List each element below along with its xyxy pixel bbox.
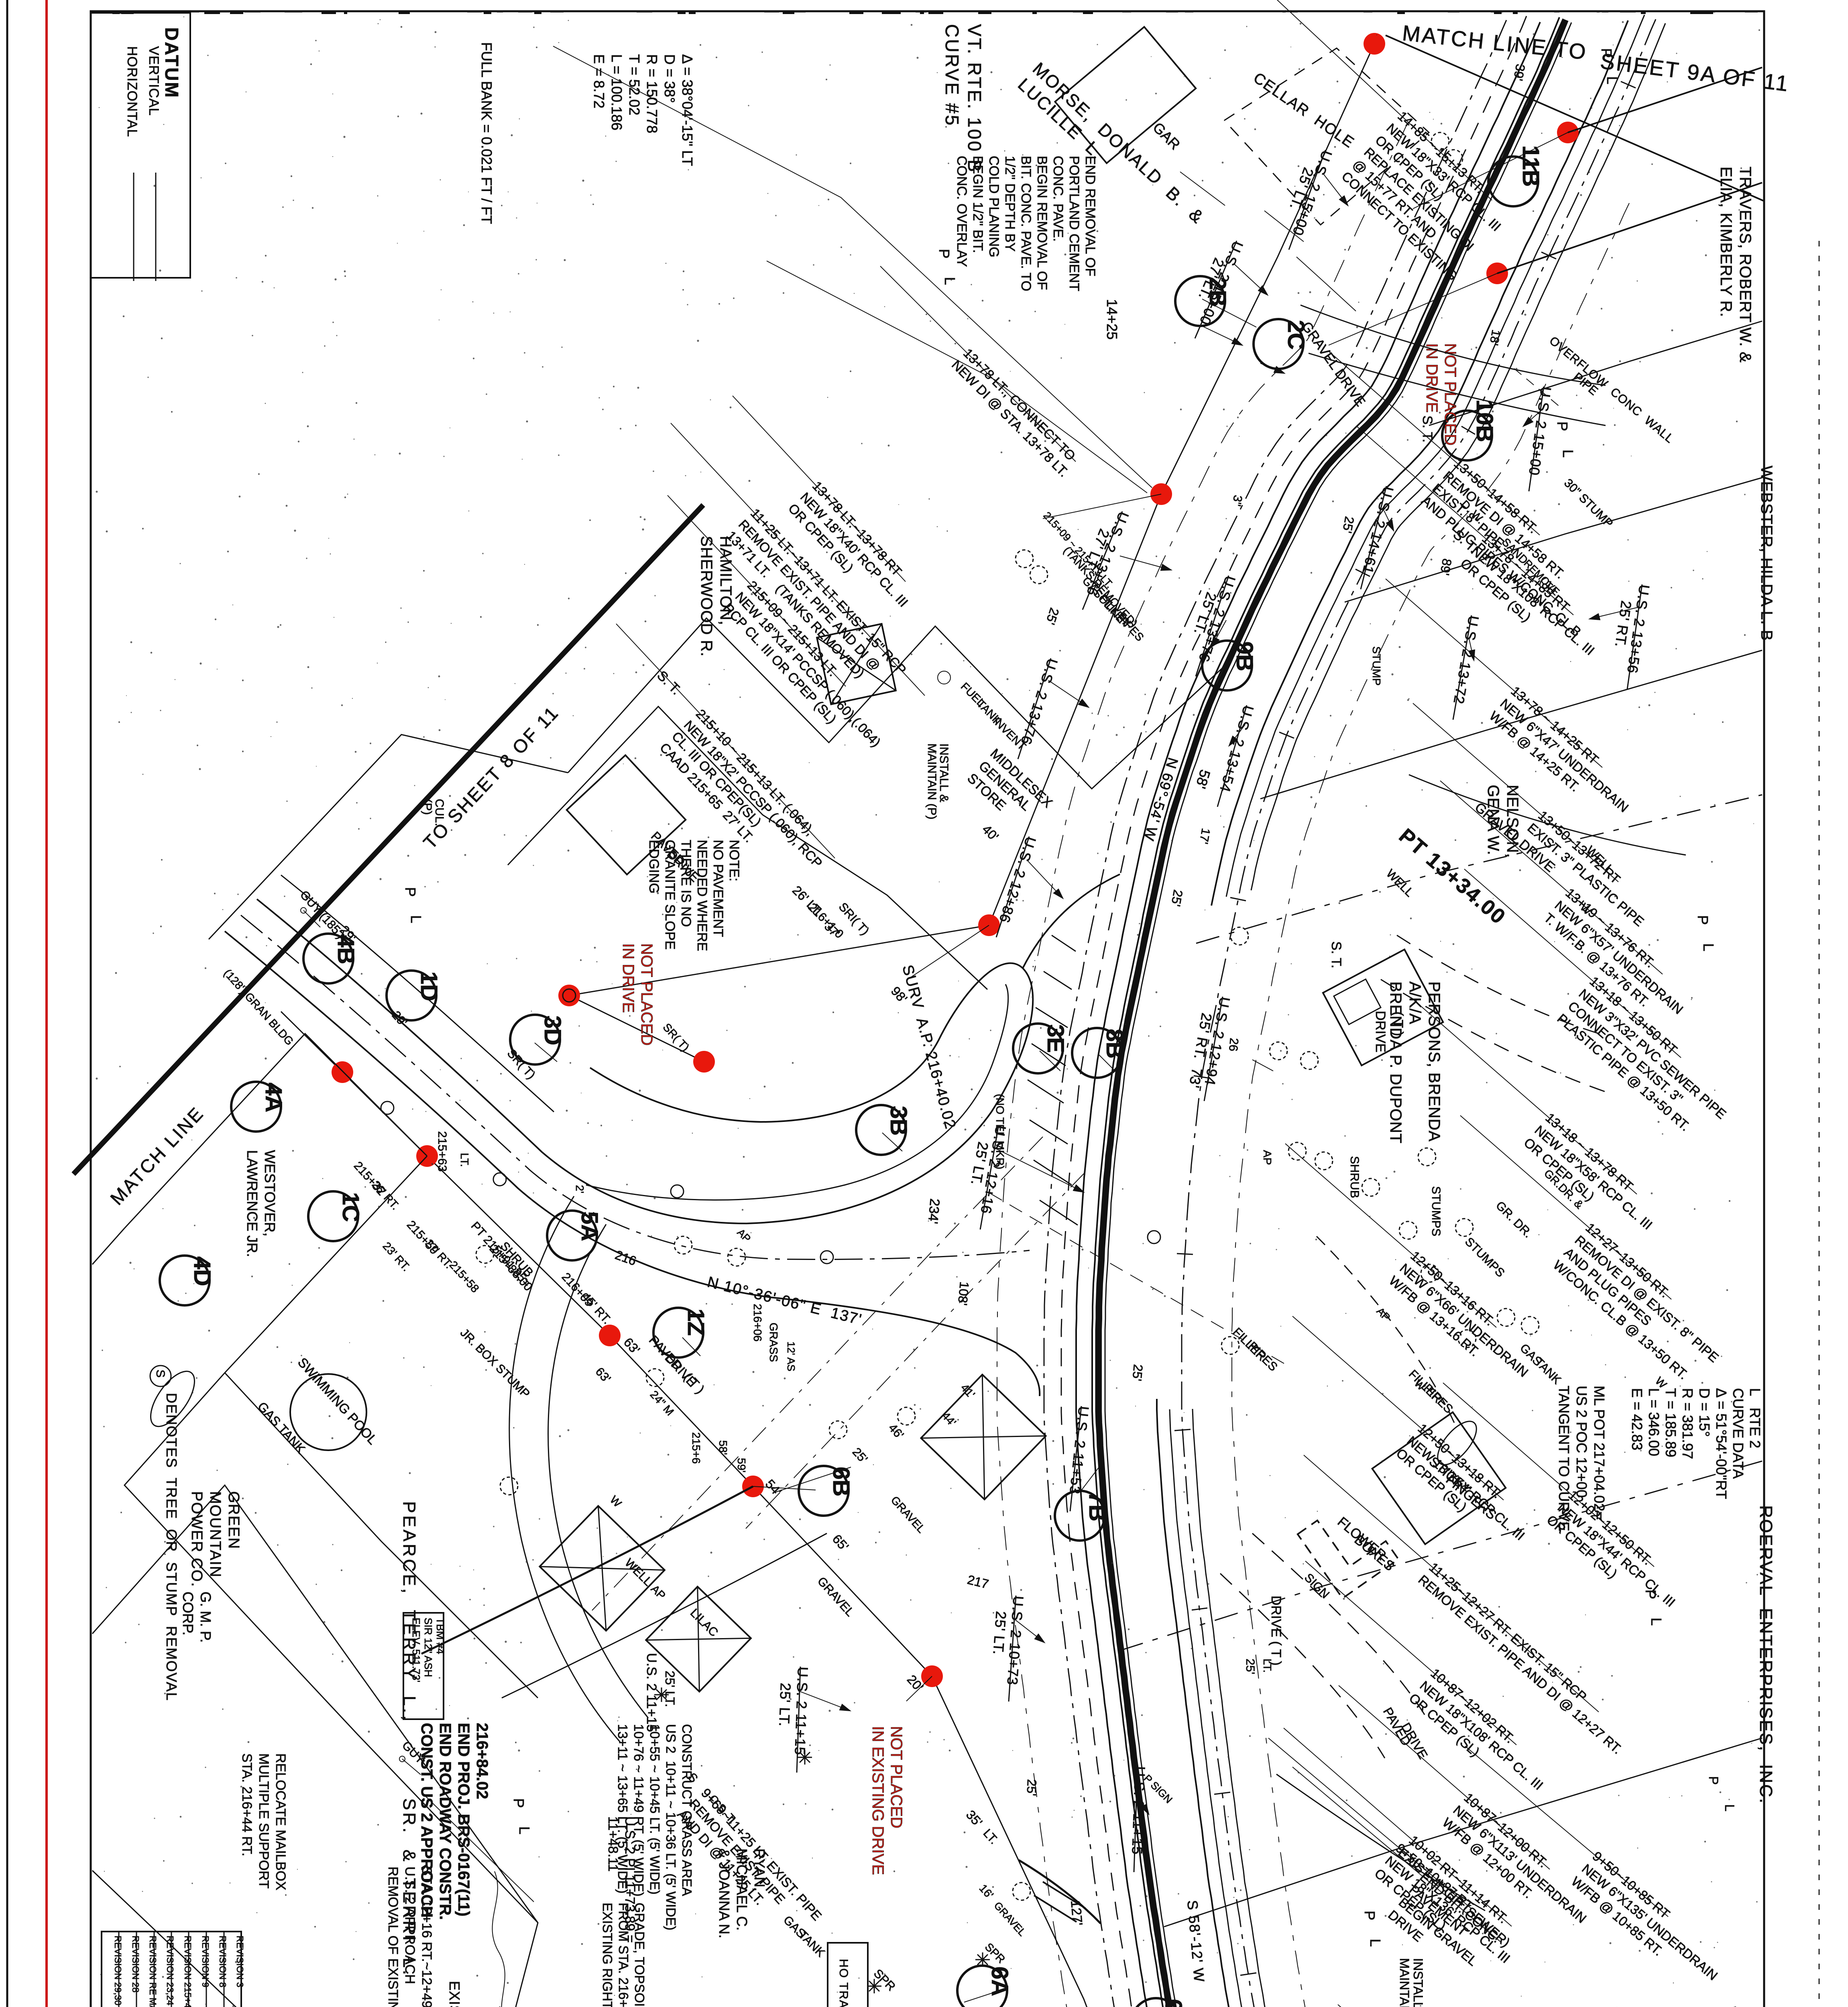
svg-text:L: L — [1604, 76, 1620, 84]
svg-text:ELIA, KIMBERLY R.: ELIA, KIMBERLY R. — [1717, 167, 1735, 318]
svg-text:17': 17' — [1197, 827, 1212, 845]
svg-text:25': 25' — [1340, 515, 1357, 534]
svg-text:25': 25' — [1244, 1659, 1257, 1674]
svg-text:VT. RTE. 100 B: VT. RTE. 100 B — [964, 24, 985, 173]
svg-text:COLD PLANING: COLD PLANING — [986, 156, 1001, 257]
svg-text:2': 2' — [574, 1185, 586, 1193]
svg-text:L = 346.00: L = 346.00 — [1646, 1388, 1662, 1456]
svg-text:INSTALL &: INSTALL & — [937, 743, 950, 802]
svg-text:SHRUB: SHRUB — [1348, 1156, 1361, 1198]
svg-text:MOUNTAIN: MOUNTAIN — [207, 1491, 224, 1578]
svg-text:P: P — [936, 249, 952, 259]
svg-text:LAWRENCE JR.: LAWRENCE JR. — [244, 1150, 261, 1257]
svg-text:R = 381.97: R = 381.97 — [1679, 1388, 1696, 1459]
svg-text:25' LT.: 25' LT. — [776, 1683, 794, 1727]
svg-text:25': 25' — [1130, 1364, 1145, 1382]
svg-text:SIR 12" ASH: SIR 12" ASH — [422, 1618, 434, 1677]
svg-text:A/K/A: A/K/A — [1406, 981, 1424, 1024]
svg-text:18': 18' — [1487, 329, 1502, 346]
svg-text:REVISION 9: REVISION 9 — [200, 1936, 211, 1987]
svg-text:L: L — [942, 277, 958, 285]
svg-text:25': 25' — [1168, 889, 1186, 908]
svg-text:PEARCE, TERRY L.,: PEARCE, TERRY L., — [399, 1501, 419, 1723]
svg-text:U.S. 2 PI 11+73.89 =: U.S. 2 PI 11+73.89 = — [622, 1816, 637, 1943]
svg-text:HORIZONTAL: HORIZONTAL — [124, 46, 140, 137]
svg-text:L: L — [408, 915, 424, 923]
svg-text:P: P — [1706, 1776, 1721, 1785]
svg-text:POWER CO.: POWER CO. — [188, 1491, 205, 1588]
svg-text:L: L — [516, 1826, 533, 1834]
svg-text:59': 59' — [735, 1458, 748, 1473]
svg-text:216+06: 216+06 — [751, 1304, 764, 1341]
svg-text:NOT PLACED: NOT PLACED — [638, 943, 655, 1046]
svg-text:STA. 216+44 RT.: STA. 216+44 RT. — [239, 1753, 254, 1856]
svg-text:MICHAEL C.: MICHAEL C. — [734, 1848, 750, 1931]
svg-text:REVISION 29,30: REVISION 29,30 — [113, 1936, 123, 2005]
svg-text:RYAN,: RYAN, — [751, 1848, 768, 1891]
svg-text:3E: 3E — [1042, 1024, 1069, 1053]
svg-text:END REMOVAL OF: END REMOVAL OF — [1083, 156, 1098, 276]
svg-text:CURVE #5: CURVE #5 — [942, 24, 963, 127]
svg-text:L: L — [1700, 943, 1717, 951]
svg-text:ROERVAL ENTERPRISES, INC.: ROERVAL ENTERPRISES, INC. — [1756, 1505, 1776, 1804]
svg-text:L: L — [1367, 1939, 1384, 1947]
svg-text:SHERWOOD R.: SHERWOOD R. — [698, 536, 715, 657]
svg-text:25': 25' — [1024, 1779, 1039, 1796]
svg-text:EXISTING RIGHT OF WAY.: EXISTING RIGHT OF WAY. — [446, 1981, 463, 2007]
svg-text:3D: 3D — [539, 1016, 566, 1045]
svg-text:11B: 11B — [1518, 145, 1544, 187]
svg-text:1Z: 1Z — [683, 1309, 709, 1336]
svg-text:NOT PLACED: NOT PLACED — [887, 1726, 905, 1828]
svg-text:89': 89' — [1437, 558, 1455, 576]
svg-text:S: S — [154, 1370, 167, 1378]
svg-text:1D: 1D — [416, 971, 442, 1001]
svg-text:WEBSTER, HILDA L. B: WEBSTER, HILDA L. B — [1758, 466, 1775, 641]
svg-text:NOT PLACED: NOT PLACED — [1441, 343, 1459, 446]
svg-text:CORP.: CORP. — [180, 1592, 196, 1635]
svg-text:GRASS: GRASS — [767, 1323, 780, 1362]
svg-text:D = 38°: D = 38° — [661, 54, 678, 103]
svg-text:GREEN: GREEN — [225, 1491, 242, 1549]
svg-text:12' AS: 12' AS — [785, 1341, 797, 1371]
svg-text:WESTOVER,: WESTOVER, — [262, 1150, 278, 1236]
svg-text:TRAVERS, ROBERT W. &: TRAVERS, ROBERT W. & — [1736, 167, 1754, 363]
svg-text:E = 8.72: E = 8.72 — [591, 54, 607, 108]
svg-text:ML POT 217+04.02=: ML POT 217+04.02= — [1591, 1386, 1608, 1520]
svg-text:IN DRIVE: IN DRIVE — [1423, 343, 1441, 413]
svg-text:MAINTAIN (P): MAINTAIN (P) — [1397, 1958, 1412, 2007]
svg-text:VERTICAL: VERTICAL — [146, 46, 161, 116]
svg-text:S. T.: S. T. — [1420, 415, 1435, 442]
svg-text:7B: 7B — [1084, 1492, 1110, 1521]
svg-text:STA. 12+16 RT.~12+49 RT.: STA. 12+16 RT.~12+49 RT. — [419, 1867, 434, 2007]
svg-text:L: L — [1722, 1804, 1737, 1812]
svg-text:L RTE 2: L RTE 2 — [1747, 1388, 1763, 1448]
svg-text:NO PAVEMENT: NO PAVEMENT — [710, 840, 726, 937]
svg-text:10B: 10B — [1471, 399, 1498, 442]
svg-text:4A: 4A — [261, 1083, 287, 1112]
svg-text:DATUM: DATUM — [161, 27, 182, 99]
svg-text:6A: 6A — [987, 1966, 1013, 1996]
svg-text:IN EXISTING DRIVE: IN EXISTING DRIVE — [869, 1726, 887, 1875]
svg-text:9B: 9B — [1231, 641, 1258, 671]
svg-text:P: P — [402, 887, 419, 897]
svg-text:4D: 4D — [189, 1256, 215, 1286]
svg-text:US 2 10+11 ~ 10+36 LT. (5' WI: US 2 10+11 ~ 10+36 LT. (5' WIDE) — [663, 1724, 678, 1930]
svg-text:CONC. PAVE.: CONC. PAVE. — [1050, 156, 1066, 242]
svg-text:( T ): ( T ) — [1390, 1012, 1406, 1036]
svg-text:INSTALL &: INSTALL & — [1411, 1958, 1425, 2007]
svg-text:11+48.11: 11+48.11 — [605, 1816, 621, 1872]
svg-text:REMOVAL OF EXISTING FENCE: REMOVAL OF EXISTING FENCE — [385, 1867, 401, 2007]
svg-text:STUMPS: STUMPS — [1429, 1186, 1443, 1236]
svg-text:D = 15°: D = 15° — [1696, 1388, 1713, 1437]
svg-text:P: P — [1362, 1911, 1378, 1920]
svg-text:P: P — [1554, 421, 1571, 431]
svg-text:BEGIN REMOVAL OF: BEGIN REMOVAL OF — [1034, 156, 1050, 290]
svg-text:P: P — [511, 1798, 527, 1808]
svg-text:5A: 5A — [576, 1211, 602, 1241]
svg-text:PERSONS, BRENDA: PERSONS, BRENDA — [1425, 981, 1443, 1142]
svg-text:234': 234' — [925, 1198, 942, 1224]
svg-text:1C: 1C — [338, 1192, 364, 1222]
svg-text:216+84.02: 216+84.02 — [473, 1723, 491, 1799]
svg-text:3B: 3B — [885, 1106, 912, 1136]
svg-text:FULL BANK = 0.021 FT / FT: FULL BANK = 0.021 FT / FT — [478, 42, 495, 224]
svg-text:REVISION 8: REVISION 8 — [218, 1936, 228, 1987]
svg-text:108': 108' — [955, 1281, 972, 1306]
svg-text:6C: 6C — [1160, 1999, 1187, 2007]
svg-text:Δ = 51°54'-00"RT: Δ = 51°54'-00"RT — [1713, 1388, 1730, 1499]
svg-text:RELOCATE MAILBOX: RELOCATE MAILBOX — [273, 1753, 288, 1890]
svg-text:25' LT.: 25' LT. — [990, 1610, 1009, 1655]
svg-text:215+6: 215+6 — [690, 1432, 702, 1464]
svg-text:T = 185.89: T = 185.89 — [1663, 1388, 1679, 1457]
svg-text:127': 127' — [1068, 1899, 1085, 1926]
svg-text:3": 3" — [1229, 494, 1244, 507]
svg-text:STUMP: STUMP — [1370, 646, 1383, 686]
svg-text:(NO TEL MKR): (NO TEL MKR) — [994, 1094, 1006, 1169]
svg-text:L = 100.186: L = 100.186 — [609, 54, 625, 130]
svg-text:REVISION 215+48: REVISION 215+48 — [183, 1936, 193, 2007]
svg-text:LT.: LT. — [1261, 1659, 1274, 1673]
svg-text:S. T.: S. T. — [1329, 941, 1344, 968]
svg-text:G. M. P.: G. M. P. — [197, 1592, 214, 1643]
svg-text:NEEDED WHERE: NEEDED WHERE — [694, 840, 710, 951]
svg-text:REVISION 23,24: REVISION 23,24 — [165, 1936, 175, 2005]
svg-text:215+63: 215+63 — [436, 1131, 449, 1172]
svg-text:(P): (P) — [421, 799, 434, 815]
svg-text:8B: 8B — [1101, 1029, 1128, 1058]
svg-text:25' LT.: 25' LT. — [663, 1671, 677, 1707]
svg-text:PORTLAND CEMENT: PORTLAND CEMENT — [1066, 156, 1082, 291]
svg-text:CURVE DATA: CURVE DATA — [1730, 1388, 1746, 1479]
svg-text:MAINTAIN (P): MAINTAIN (P) — [925, 743, 938, 819]
svg-text:SR. & TERRI L.: SR. & TERRI L. — [399, 1798, 419, 1977]
svg-text:TBM #4: TBM #4 — [434, 1618, 446, 1654]
svg-text:CONC. OVERLAY: CONC. OVERLAY — [954, 156, 969, 267]
svg-text:R = 150.778: R = 150.778 — [644, 54, 660, 133]
svg-text:MULTIPLE SUPPORT: MULTIPLE SUPPORT — [256, 1753, 271, 1889]
svg-text:DRIVE: DRIVE — [1373, 1011, 1388, 1052]
svg-text:L: L — [1648, 1618, 1665, 1626]
svg-text:10+55 ~ 10+45 LT. (5' WIDE): 10+55 ~ 10+45 LT. (5' WIDE) — [647, 1724, 662, 1895]
svg-text:DRIVE ( T ): DRIVE ( T ) — [1268, 1596, 1284, 1665]
svg-text:HO TRAILER: HO TRAILER — [837, 1959, 850, 2007]
svg-text:REVISION 28: REVISION 28 — [130, 1936, 141, 1993]
svg-text:LT.: LT. — [458, 1153, 471, 1167]
svg-text:U.S. 2 11+15: U.S. 2 11+15 — [644, 1653, 659, 1732]
svg-text:P: P — [1695, 915, 1711, 925]
svg-text:14+25: 14+25 — [1104, 299, 1120, 340]
svg-text:NOTE:: NOTE: — [727, 840, 742, 881]
svg-text:E = 42.83: E = 42.83 — [1629, 1388, 1645, 1450]
svg-text:U.S. 2 11+15: U.S. 2 11+15 — [792, 1667, 811, 1756]
svg-text:39': 39' — [1511, 63, 1528, 82]
svg-text:& JOANNA N.: & JOANNA N. — [716, 1848, 733, 1938]
svg-text:1/2" DEPTH BY: 1/2" DEPTH BY — [1002, 156, 1018, 252]
svg-text:BIT. CONC. PAVE. TO: BIT. CONC. PAVE. TO — [1018, 156, 1034, 291]
svg-text:BRENDA P. DUPONT: BRENDA P. DUPONT — [1387, 981, 1404, 1144]
svg-text:CUL.: CUL. — [433, 799, 446, 826]
svg-text:AP: AP — [1261, 1150, 1274, 1165]
svg-text:END PROJ. BRS-0167(11): END PROJ. BRS-0167(11) — [455, 1723, 472, 1916]
svg-text:58': 58' — [717, 1440, 729, 1455]
svg-text:T = 52.02: T = 52.02 — [626, 54, 643, 115]
svg-text:US 2 POC 12+00: US 2 POC 12+00 — [1573, 1386, 1590, 1498]
svg-text:L: L — [1560, 450, 1576, 458]
svg-text:REVISION RE MAIL: REVISION RE MAIL — [148, 1936, 158, 2007]
svg-text:6B: 6B — [828, 1467, 854, 1496]
svg-text:P: P — [1598, 48, 1615, 58]
svg-text:BEGIN 1/2" BIT.: BEGIN 1/2" BIT. — [970, 156, 985, 253]
svg-text:IN DRIVE: IN DRIVE — [619, 943, 637, 1013]
svg-text:DENOTES TREE OR STUMP REMO: DENOTES TREE OR STUMP REMOVAL — [163, 1393, 180, 1701]
svg-text:EXISTING RIGHT OF WAY.: EXISTING RIGHT OF WAY. — [600, 1903, 615, 2007]
svg-text:26: 26 — [1226, 1037, 1241, 1052]
svg-text:Δ = 38°04'-15" LT: Δ = 38°04'-15" LT — [679, 54, 696, 166]
